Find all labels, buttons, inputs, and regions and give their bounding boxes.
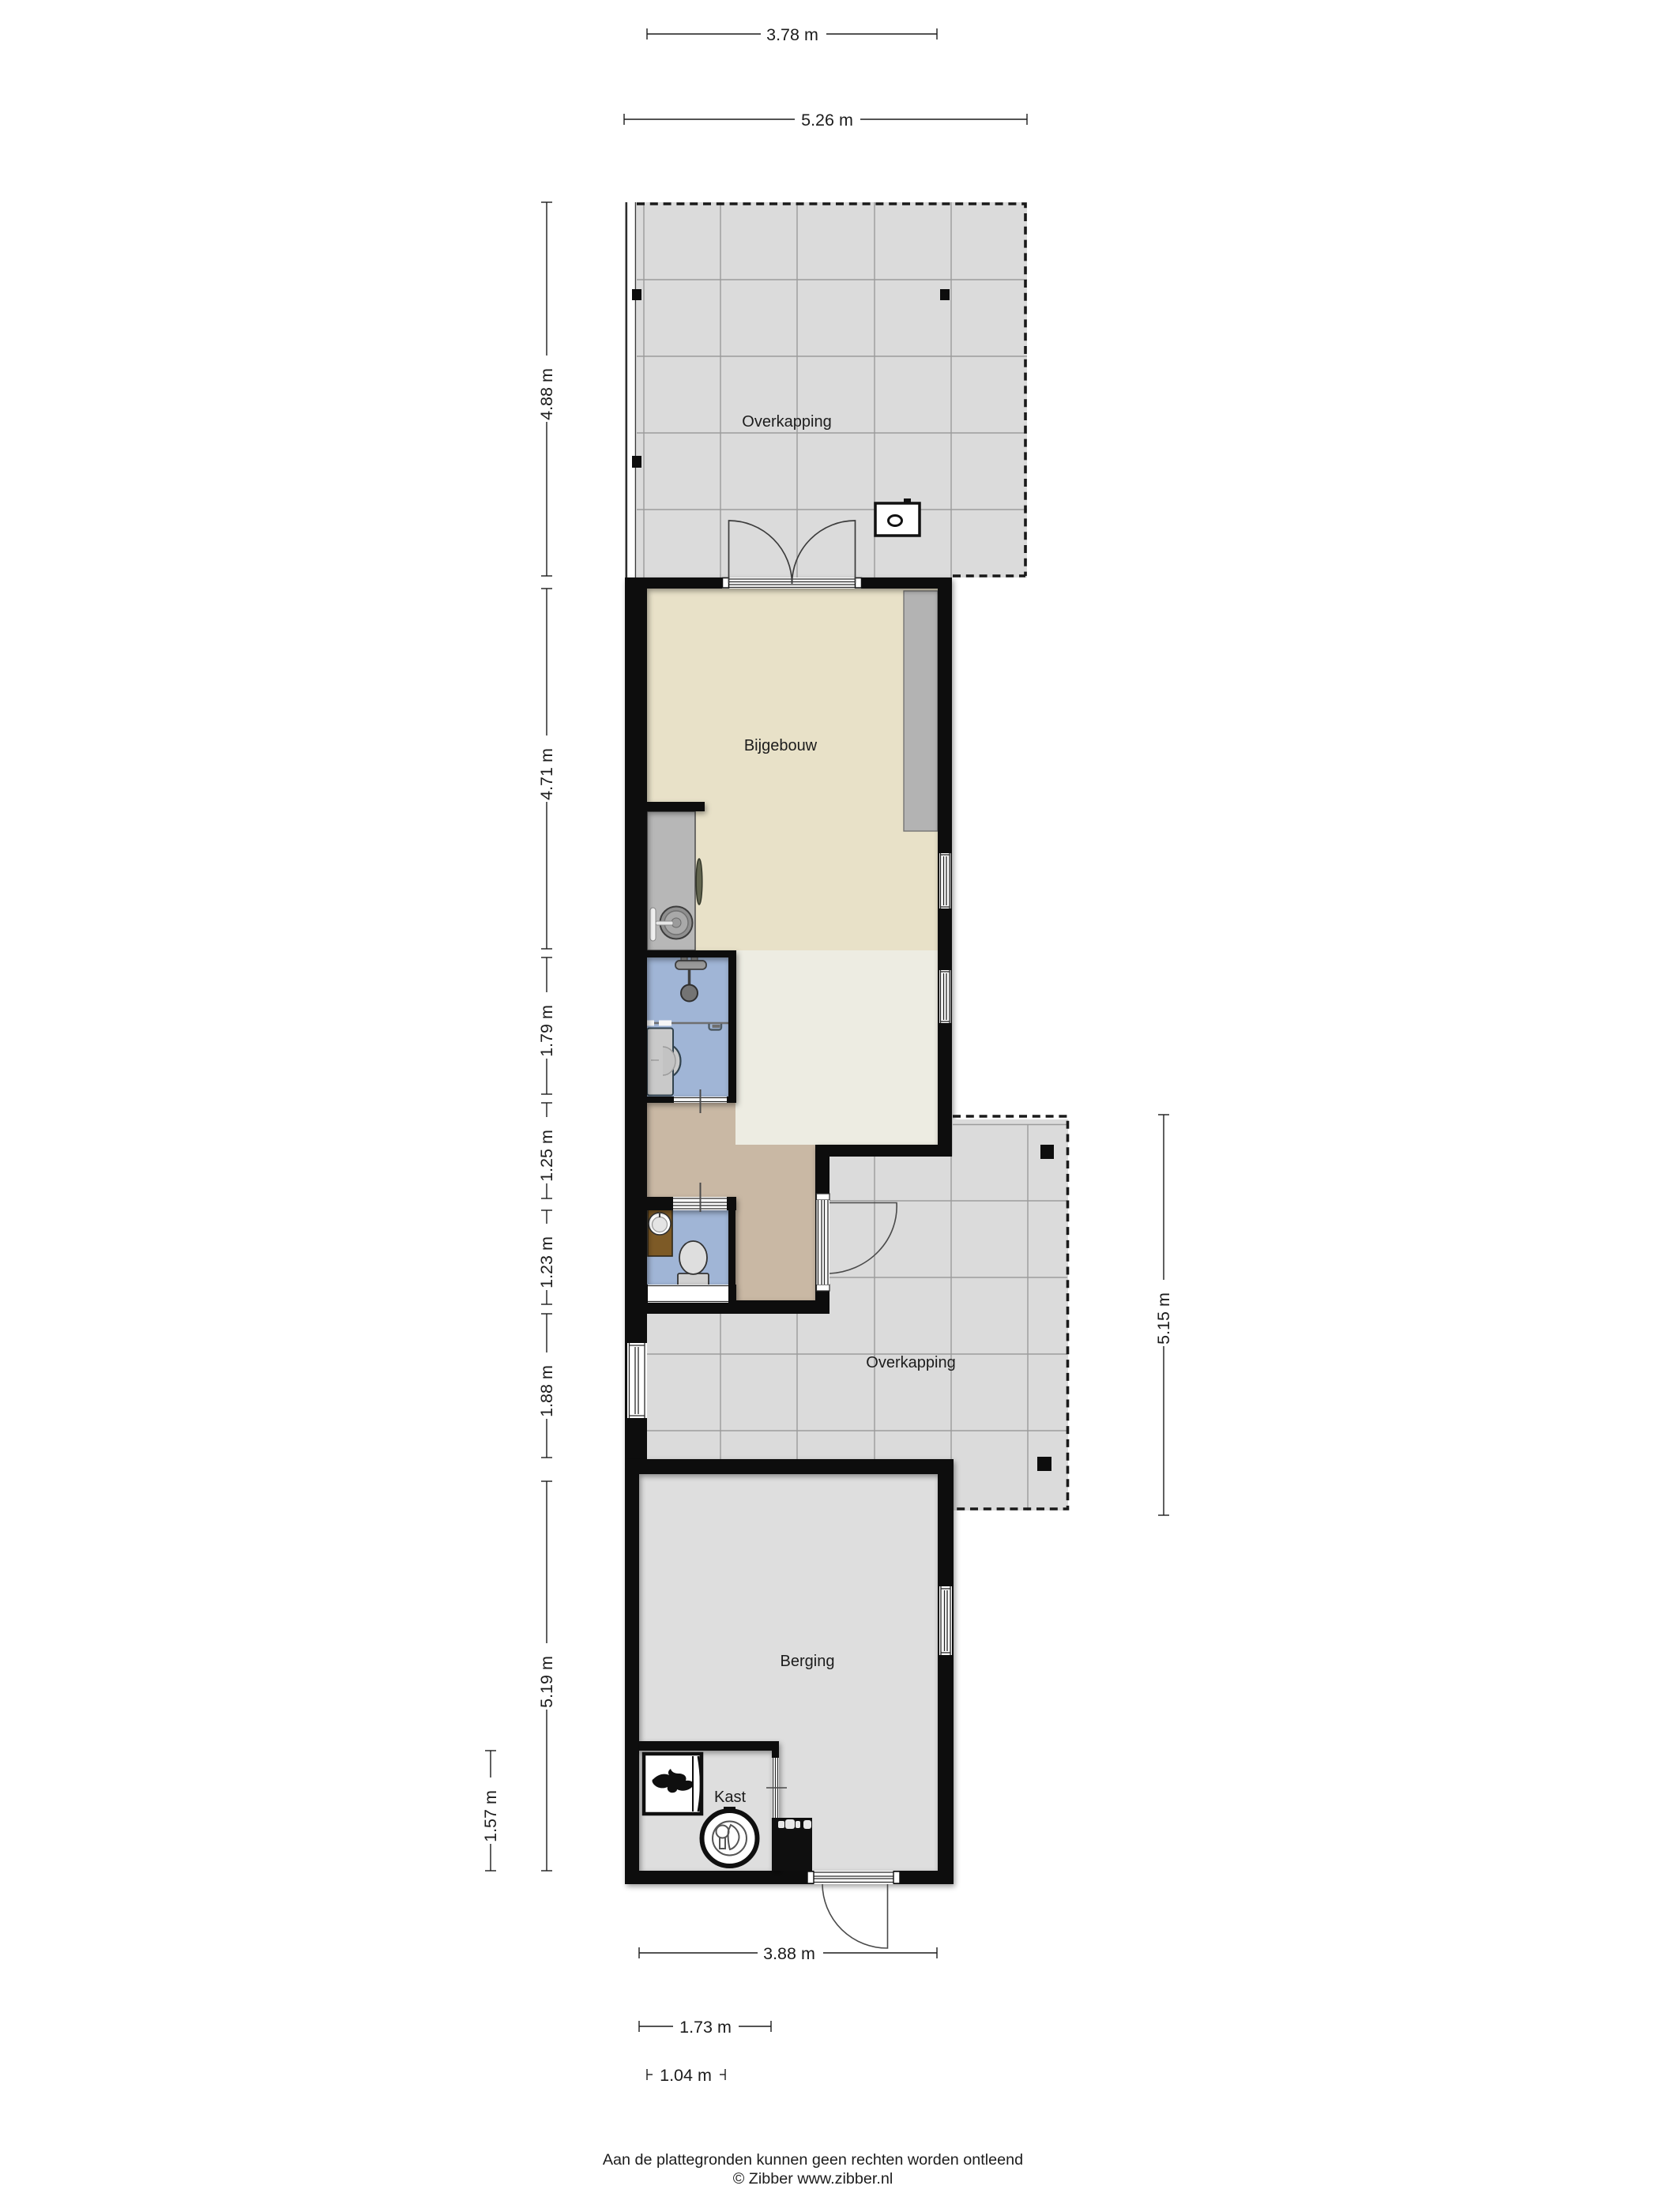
svg-text:5.15 m: 5.15 m: [1154, 1292, 1173, 1345]
svg-text:4.88 m: 4.88 m: [537, 368, 556, 420]
svg-text:Overkapping: Overkapping: [742, 413, 831, 431]
svg-text:Bijgebouw: Bijgebouw: [744, 737, 818, 754]
svg-text:1.88 m: 1.88 m: [537, 1365, 556, 1417]
svg-text:1.04 m: 1.04 m: [660, 2066, 712, 2085]
svg-text:Overkapping: Overkapping: [866, 1354, 955, 1371]
svg-text:4.71 m: 4.71 m: [537, 748, 556, 800]
svg-text:1.57 m: 1.57 m: [481, 1790, 500, 1842]
svg-text:Aan de plattegronden kunnen ge: Aan de plattegronden kunnen geen rechten…: [603, 2151, 1023, 2169]
svg-text:5.26 m: 5.26 m: [801, 111, 853, 130]
svg-text:1.25 m: 1.25 m: [537, 1130, 556, 1182]
svg-text:Berging: Berging: [781, 1653, 835, 1670]
svg-text:1.23 m: 1.23 m: [537, 1236, 556, 1288]
svg-text:5.19 m: 5.19 m: [537, 1656, 556, 1708]
svg-text:3.78 m: 3.78 m: [766, 25, 818, 44]
svg-text:3.88 m: 3.88 m: [763, 1944, 815, 1963]
svg-text:1.79 m: 1.79 m: [537, 1005, 556, 1057]
svg-text:© Zibber www.zibber.nl: © Zibber www.zibber.nl: [733, 2170, 893, 2188]
svg-text:1.73 m: 1.73 m: [679, 2018, 732, 2037]
svg-text:Kast: Kast: [714, 1789, 746, 1806]
